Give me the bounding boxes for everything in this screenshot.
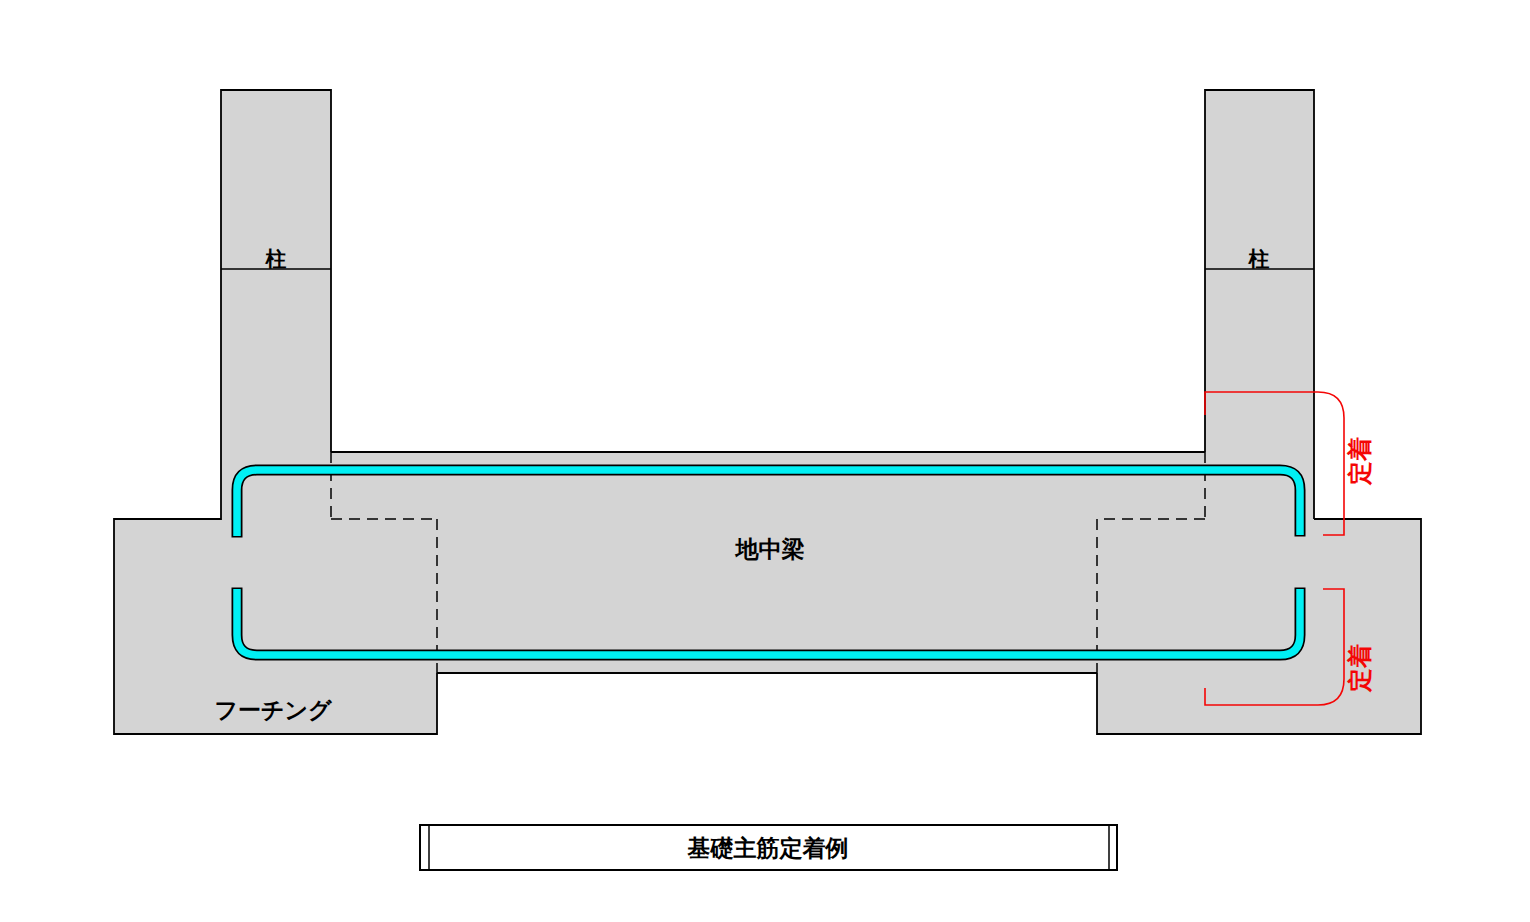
foundation-anchorage-diagram: 定着 定着 柱 柱 地中梁 フーチング 基礎主筋定着例 [0,0,1530,922]
concrete-fills [114,90,1421,734]
title-block: 基礎主筋定着例 [420,825,1117,870]
beam-fill [331,452,1205,673]
drawing-title: 基礎主筋定着例 [687,835,849,861]
beam-label: 地中梁 [735,536,805,562]
left-column-fill [221,90,331,520]
footing-label: フーチング [214,697,333,723]
right-column-label: 柱 [1248,247,1270,270]
right-column-fill [1205,90,1314,519]
right-footing-fill [1097,519,1421,734]
top-anchorage-label: 定着 [1346,437,1373,486]
left-column-label: 柱 [265,247,287,270]
drawing-canvas: 定着 定着 柱 柱 地中梁 フーチング 基礎主筋定着例 [0,0,1530,922]
bottom-anchorage-label: 定着 [1346,644,1373,693]
